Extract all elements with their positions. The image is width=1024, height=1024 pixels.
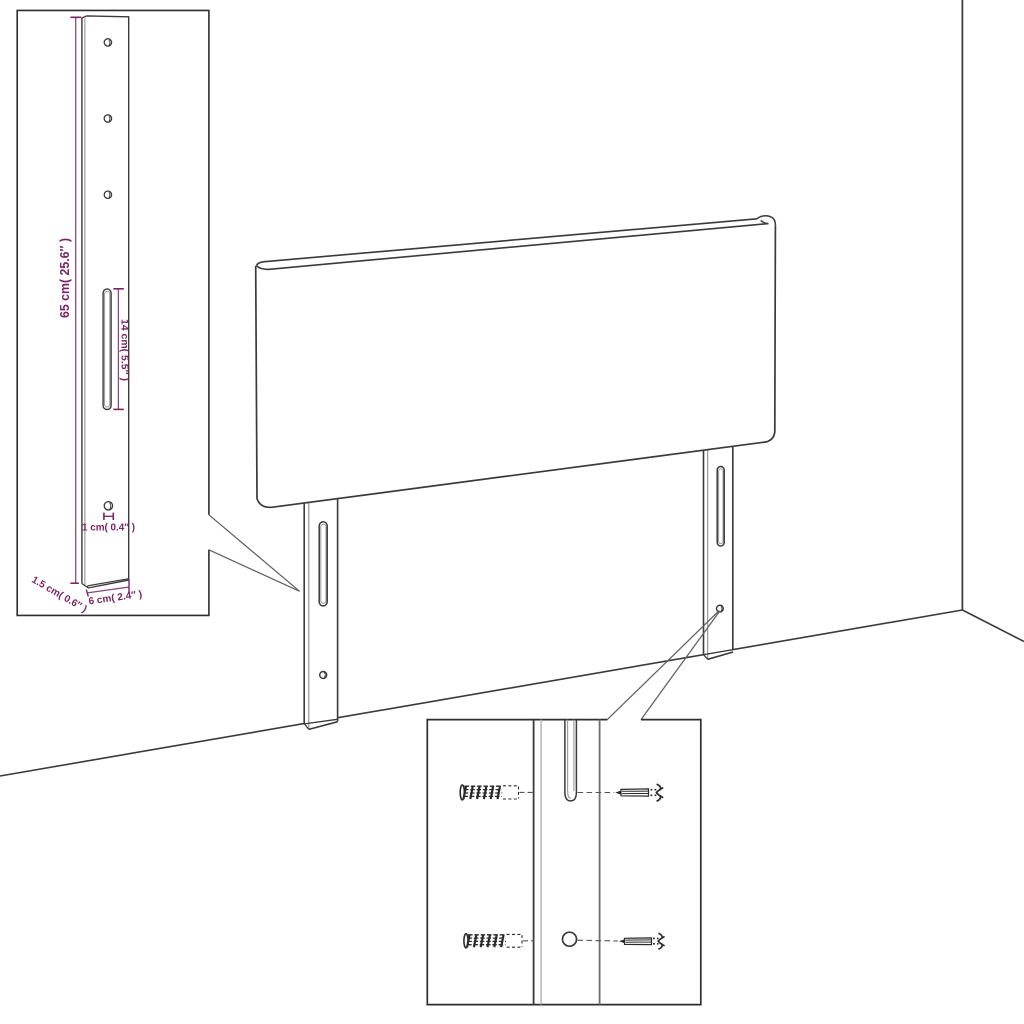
svg-text:1 cm( 0.4″ ): 1 cm( 0.4″ ) [82,523,135,534]
svg-text:14 cm( 5.5″ ): 14 cm( 5.5″ ) [118,319,130,381]
svg-text:65 cm( 25.6″ ): 65 cm( 25.6″ ) [57,238,72,318]
